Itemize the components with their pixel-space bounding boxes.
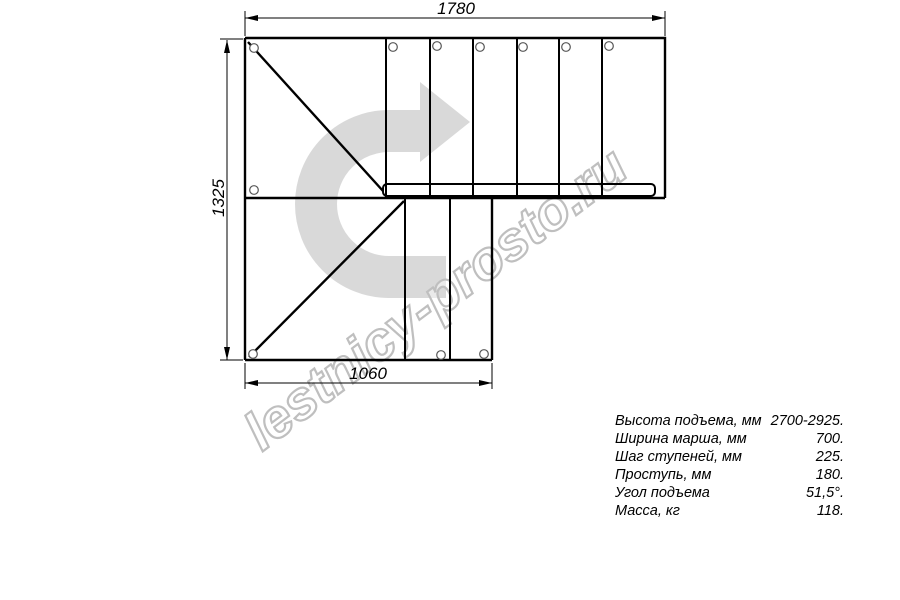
spec-label: Масса, кг — [615, 502, 680, 520]
dimension-top-label: 1780 — [437, 0, 475, 18]
mount-hole — [476, 43, 485, 52]
dimension-arrow-right — [479, 380, 492, 386]
dimension-arrow-left — [245, 380, 258, 386]
spec-label: Шаг ступеней, мм — [615, 448, 742, 466]
specs-table: Высота подъема, мм 2700-2925. Ширина мар… — [615, 412, 844, 520]
mount-hole — [519, 43, 528, 52]
dimension-bottom-label: 1060 — [349, 364, 387, 383]
spec-label: Ширина марша, мм — [615, 430, 747, 448]
spec-label: Высота подъема, мм — [615, 412, 762, 430]
mount-hole — [480, 350, 489, 359]
mount-hole — [389, 43, 398, 52]
spec-label: Угол подъема — [615, 484, 710, 502]
mount-hole — [437, 351, 446, 360]
spec-value: 118. — [817, 502, 844, 520]
spec-value: 225. — [816, 448, 844, 466]
spec-row-height: Высота подъема, мм 2700-2925. — [615, 412, 844, 430]
spec-value: 2700-2925. — [771, 412, 844, 430]
dimension-left: 1325 — [209, 39, 243, 360]
dimension-arrow-right — [652, 15, 665, 21]
spec-row-tread: Проступь, мм 180. — [615, 466, 844, 484]
mount-hole — [250, 44, 259, 53]
spec-value: 180. — [816, 466, 844, 484]
dimension-arrow-bottom — [224, 347, 230, 360]
dimension-left-label: 1325 — [209, 179, 228, 217]
spec-row-step-pitch: Шаг ступеней, мм 225. — [615, 448, 844, 466]
mount-hole — [433, 42, 442, 51]
spec-value: 51,5°. — [806, 484, 844, 502]
mount-hole — [562, 43, 571, 52]
stair-drawing-page: lestnicy-prosto.ru — [0, 0, 900, 600]
u-turn-arrow-icon — [316, 82, 470, 277]
spec-row-mass: Масса, кг 118. — [615, 502, 844, 520]
spec-value: 700. — [816, 430, 844, 448]
dimension-arrow-top — [224, 40, 230, 53]
spec-label: Проступь, мм — [615, 466, 711, 484]
dimension-top: 1780 — [245, 0, 665, 36]
dimension-arrow-left — [245, 15, 258, 21]
spec-row-angle: Угол подъема 51,5°. — [615, 484, 844, 502]
mount-hole — [249, 350, 258, 359]
u-turn-arrow-head — [420, 82, 470, 162]
spec-row-flight-width: Ширина марша, мм 700. — [615, 430, 844, 448]
mount-hole — [605, 42, 614, 51]
mount-hole — [250, 186, 259, 195]
